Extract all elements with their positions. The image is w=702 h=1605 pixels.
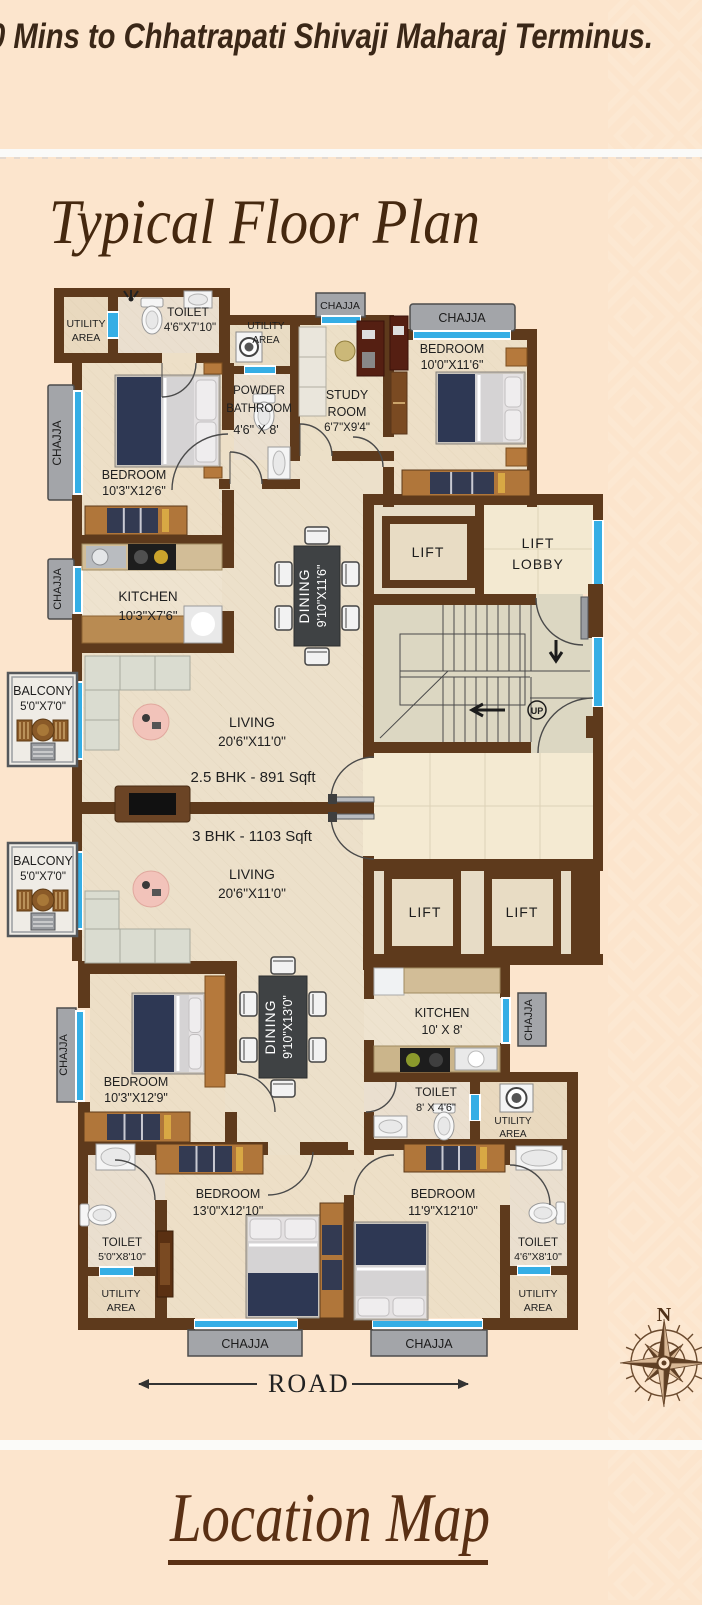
svg-text:LIFT: LIFT <box>522 535 555 551</box>
svg-text:Location Map: Location Map <box>169 1480 490 1557</box>
svg-text:CHAJJA: CHAJJA <box>50 420 64 465</box>
svg-text:UTILITY: UTILITY <box>247 321 285 332</box>
svg-text:CHAJJA: CHAJJA <box>221 1337 269 1351</box>
svg-text:BATHROOM: BATHROOM <box>226 403 292 415</box>
svg-text:POWDER: POWDER <box>233 385 285 397</box>
svg-text:UTILITY: UTILITY <box>518 1288 557 1300</box>
svg-text:10'0"X11'6": 10'0"X11'6" <box>421 358 484 372</box>
svg-text:9'10"X13'0": 9'10"X13'0" <box>281 995 295 1059</box>
svg-text:11'9"X12'10": 11'9"X12'10" <box>408 1204 478 1218</box>
svg-text:CHAJJA: CHAJJA <box>52 568 64 610</box>
svg-text:TOILET: TOILET <box>102 1237 142 1249</box>
svg-text:TOILET: TOILET <box>518 1237 558 1249</box>
svg-text:AREA: AREA <box>524 1302 553 1314</box>
svg-text:UTILITY: UTILITY <box>66 318 105 330</box>
svg-text:UTILITY: UTILITY <box>494 1116 532 1127</box>
svg-text:13'0"X12'10": 13'0"X12'10" <box>193 1204 264 1218</box>
svg-text:LOBBY: LOBBY <box>512 556 564 572</box>
svg-text:6'7"X9'4": 6'7"X9'4" <box>324 422 370 434</box>
svg-text:5'0"X7'0": 5'0"X7'0" <box>20 701 66 713</box>
svg-text:20'6"X11'0": 20'6"X11'0" <box>218 734 286 749</box>
svg-text:BALCONY: BALCONY <box>13 684 73 698</box>
svg-text:BEDROOM: BEDROOM <box>196 1187 261 1201</box>
svg-text:CHAJJA: CHAJJA <box>523 999 535 1041</box>
svg-text:5'0"X8'10": 5'0"X8'10" <box>98 1251 146 1263</box>
svg-text:3 BHK - 1103 Sqft: 3 BHK - 1103 Sqft <box>192 828 313 845</box>
svg-text:TOILET: TOILET <box>167 305 209 319</box>
svg-text:LIFT: LIFT <box>409 904 442 920</box>
svg-text:UP: UP <box>531 706 544 716</box>
svg-text:TOILET: TOILET <box>415 1085 457 1099</box>
svg-text:Typical Floor Plan: Typical Floor Plan <box>49 186 480 257</box>
svg-text:10'3"X7'6": 10'3"X7'6" <box>118 608 177 623</box>
svg-text:9'10"X11'6": 9'10"X11'6" <box>315 565 329 628</box>
svg-text:2.5 BHK - 891 Sqft: 2.5 BHK - 891 Sqft <box>190 769 316 786</box>
svg-text:LIVING: LIVING <box>229 714 275 730</box>
svg-text:AREA: AREA <box>72 332 101 344</box>
svg-text:10'3"X12'9": 10'3"X12'9" <box>104 1091 168 1105</box>
svg-text:CHAJJA: CHAJJA <box>438 311 486 325</box>
svg-text:BEDROOM: BEDROOM <box>104 1075 169 1089</box>
svg-text:LIFT: LIFT <box>506 904 539 920</box>
svg-text:20'6"X11'0": 20'6"X11'0" <box>218 886 286 901</box>
svg-text:CHAJJA: CHAJJA <box>58 1034 70 1076</box>
svg-text:10'3"X12'6": 10'3"X12'6" <box>102 484 166 498</box>
svg-text:4'6" X 8': 4'6" X 8' <box>233 423 278 437</box>
svg-text:5'0"X7'0": 5'0"X7'0" <box>20 871 66 883</box>
svg-text:BALCONY: BALCONY <box>13 854 73 868</box>
svg-text:KITCHEN: KITCHEN <box>118 589 177 604</box>
svg-text:AREA: AREA <box>499 1129 527 1140</box>
svg-text:BEDROOM: BEDROOM <box>102 468 167 482</box>
svg-text:CHAJJA: CHAJJA <box>320 300 360 312</box>
svg-text:LIFT: LIFT <box>412 544 445 560</box>
svg-text:LIVING: LIVING <box>229 866 275 882</box>
svg-text:0 Mins to Chhatrapati Shivaji: 0 Mins to Chhatrapati Shivaji Maharaj Te… <box>0 17 653 56</box>
svg-text:KITCHEN: KITCHEN <box>415 1006 470 1020</box>
svg-text:CHAJJA: CHAJJA <box>405 1337 453 1351</box>
svg-text:DINING: DINING <box>296 569 312 624</box>
svg-text:STUDY: STUDY <box>326 388 369 402</box>
svg-text:4'6"X7'10": 4'6"X7'10" <box>164 322 216 334</box>
svg-text:ROOM: ROOM <box>328 405 367 419</box>
svg-text:BEDROOM: BEDROOM <box>420 342 485 356</box>
svg-text:ROAD: ROAD <box>268 1369 350 1398</box>
svg-text:UTILITY: UTILITY <box>101 1288 140 1300</box>
svg-text:N: N <box>657 1304 672 1326</box>
svg-text:DINING: DINING <box>262 1000 278 1055</box>
svg-text:BEDROOM: BEDROOM <box>411 1187 476 1201</box>
svg-text:4'6"X8'10": 4'6"X8'10" <box>514 1251 562 1263</box>
svg-text:8' X 4'6": 8' X 4'6" <box>416 1102 456 1114</box>
svg-text:AREA: AREA <box>252 335 280 346</box>
svg-text:10' X 8': 10' X 8' <box>422 1023 463 1037</box>
svg-text:AREA: AREA <box>107 1302 136 1314</box>
